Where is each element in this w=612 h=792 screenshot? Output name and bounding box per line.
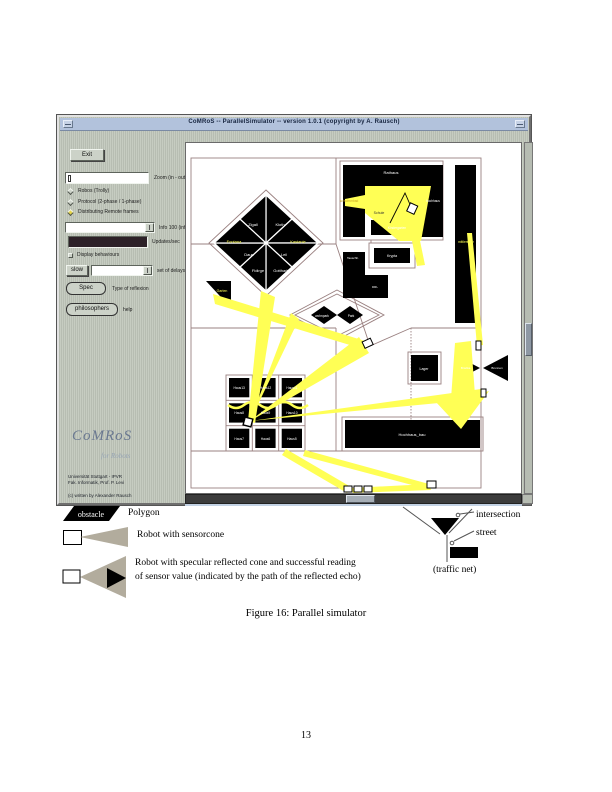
legend-intersection-label: intersection bbox=[476, 510, 521, 520]
vertical-scrollbar[interactable] bbox=[524, 142, 533, 494]
label-krypta: Krypta bbox=[387, 254, 397, 258]
robot-house-grid[interactable] bbox=[243, 417, 253, 427]
street-block-icon bbox=[450, 547, 478, 558]
vertical-scrollbar-thumb[interactable] bbox=[525, 323, 532, 356]
legend-specular-line-1: Robot with specular reflected cone and s… bbox=[135, 558, 356, 568]
legend-sensorcone-label: Robot with sensorcone bbox=[137, 530, 224, 540]
simulation-map: Rathaus schwimmbad hochhaus Schule Kinde… bbox=[186, 143, 521, 493]
label-haus-3: Haus8 bbox=[234, 411, 244, 415]
label-wohnpark: wohnpark bbox=[315, 314, 329, 318]
control-panel: Exit Zoom (in - out) Robos (Trolly) Prot… bbox=[59, 130, 185, 505]
updates-field[interactable] bbox=[68, 236, 148, 248]
label-diamond-4: Daun bbox=[244, 252, 254, 257]
label-diamond-3: Kastanie bbox=[290, 239, 306, 244]
exit-button[interactable]: Exit bbox=[70, 149, 104, 161]
legend-street-label: street bbox=[476, 528, 497, 538]
label-park: Park bbox=[348, 314, 355, 318]
radio-distributing-label[interactable]: Distributing Remote frames bbox=[78, 209, 139, 215]
delay-slider[interactable] bbox=[91, 265, 153, 276]
zoom-label: Zoom (in - out) bbox=[154, 175, 187, 181]
label-diamond-6: Fidirge bbox=[252, 268, 265, 273]
label-diamond-0: Zigall bbox=[248, 222, 258, 227]
radio-distributing[interactable] bbox=[67, 209, 74, 216]
label-diamond-5: Leil bbox=[281, 252, 287, 257]
radio-robos-label[interactable]: Robos (Trolly) bbox=[78, 188, 109, 194]
robot-right-lower[interactable] bbox=[481, 389, 486, 397]
label-garten: Garten bbox=[217, 289, 228, 293]
radio-protocol-label[interactable]: Protocol (2-phase / 1-phase) bbox=[78, 199, 141, 205]
robot-right-upper[interactable] bbox=[476, 341, 481, 350]
traffic-net-symbol: intersection street (traffic net) bbox=[400, 503, 560, 578]
sensorcone-symbol bbox=[80, 525, 130, 549]
obstacle-symbol: obstacle bbox=[63, 506, 125, 522]
label-diamond-1: Kloth bbox=[275, 222, 284, 227]
spec-label: Type of reflexion bbox=[112, 286, 149, 292]
label-rathaus: Rathaus bbox=[384, 170, 399, 175]
spec-button[interactable]: Spec bbox=[66, 282, 106, 295]
label-lager: Lager bbox=[420, 367, 430, 371]
label-tauschhalle: Tauschh. bbox=[347, 256, 359, 260]
credit-line-1: Universität Stuttgart - IPVR bbox=[68, 474, 122, 479]
comros-logo: CoMRoS bbox=[72, 428, 132, 445]
label-diamond-7: Gottharb bbox=[273, 268, 289, 273]
label-haus-4: Haus9 bbox=[261, 411, 271, 415]
label-haus-5: Haus10 bbox=[286, 411, 298, 415]
display-checkbox-label[interactable]: Display behaviours bbox=[77, 252, 119, 258]
label-diamond-2: Fontana bbox=[227, 239, 242, 244]
robot-bottom-1[interactable] bbox=[344, 486, 352, 492]
simulator-window: CoMRoS -- ParallelSimulator -- version 1… bbox=[57, 115, 531, 505]
label-drl: DRL bbox=[372, 285, 378, 289]
zoom-input[interactable] bbox=[65, 172, 149, 184]
paper-page: CoMRoS -- ParallelSimulator -- version 1… bbox=[0, 0, 612, 792]
page-number: 13 bbox=[0, 730, 612, 741]
label-haus-8: Haus5 bbox=[287, 437, 297, 441]
slow-button[interactable]: slow bbox=[66, 265, 88, 276]
philosophers-label: help bbox=[123, 307, 132, 313]
label-kindergarten: Kindergarten bbox=[388, 226, 406, 230]
comros-logo-subtitle: for Robots bbox=[101, 452, 130, 460]
philosophers-button[interactable]: philosophers bbox=[66, 303, 118, 316]
label-schule: Schule bbox=[374, 211, 385, 215]
label-strasse: mittlere_str bbox=[458, 240, 475, 244]
robot-bottom-2[interactable] bbox=[354, 486, 362, 492]
window-title: CoMRoS -- ParallelSimulator -- version 1… bbox=[60, 119, 528, 125]
text-caret bbox=[68, 175, 71, 182]
map-canvas[interactable]: Rathaus schwimmbad hochhaus Schule Kinde… bbox=[185, 142, 522, 494]
robot-bottom-3[interactable] bbox=[364, 486, 372, 492]
label-briefkasten: Briefka. bbox=[461, 366, 471, 370]
label-hochhaus: hochhaus bbox=[426, 199, 440, 203]
info-slider[interactable] bbox=[65, 222, 155, 233]
credit-line-2: Fak. Informatik, Prof. P. Levi bbox=[68, 480, 124, 485]
label-schwimmbad: schwimmbad bbox=[340, 199, 359, 203]
label-haus-2: Haus11 bbox=[286, 386, 297, 390]
credit-line-3: (c) written by Alexander Rausch bbox=[68, 493, 132, 498]
radio-protocol[interactable] bbox=[67, 199, 74, 206]
label-haus-1: Haus12 bbox=[260, 386, 272, 390]
delay-slider-thumb[interactable] bbox=[143, 266, 152, 275]
robot-bottom-right[interactable] bbox=[427, 481, 436, 488]
label-haus-0: Haus13 bbox=[234, 386, 246, 390]
label-haus-6: Haus7 bbox=[234, 437, 244, 441]
display-checkbox[interactable] bbox=[68, 253, 73, 258]
legend-traffic-net-label: (traffic net) bbox=[433, 564, 476, 575]
window-maximize-icon[interactable] bbox=[515, 120, 525, 128]
legend-polygon-label: Polygon bbox=[128, 508, 160, 518]
label-hochhaus-bau: Hochhaus_bau bbox=[399, 432, 426, 437]
label-brunnen: Brunnen bbox=[491, 366, 503, 370]
horizontal-scrollbar-thumb[interactable] bbox=[346, 495, 375, 503]
specular-cone-symbol bbox=[62, 552, 132, 598]
delay-slider-label: set of delays bbox=[157, 268, 185, 274]
label-haus-7: Haus6 bbox=[261, 437, 271, 441]
updates-label: Updates/sec bbox=[152, 239, 180, 245]
radio-robos[interactable] bbox=[67, 188, 74, 195]
obstacle-symbol-label: obstacle bbox=[78, 510, 105, 519]
figure-caption: Figure 16: Parallel simulator bbox=[0, 608, 612, 619]
info-slider-thumb[interactable] bbox=[145, 223, 154, 232]
legend-specular-line-2: of sensor value (indicated by the path o… bbox=[135, 572, 361, 582]
